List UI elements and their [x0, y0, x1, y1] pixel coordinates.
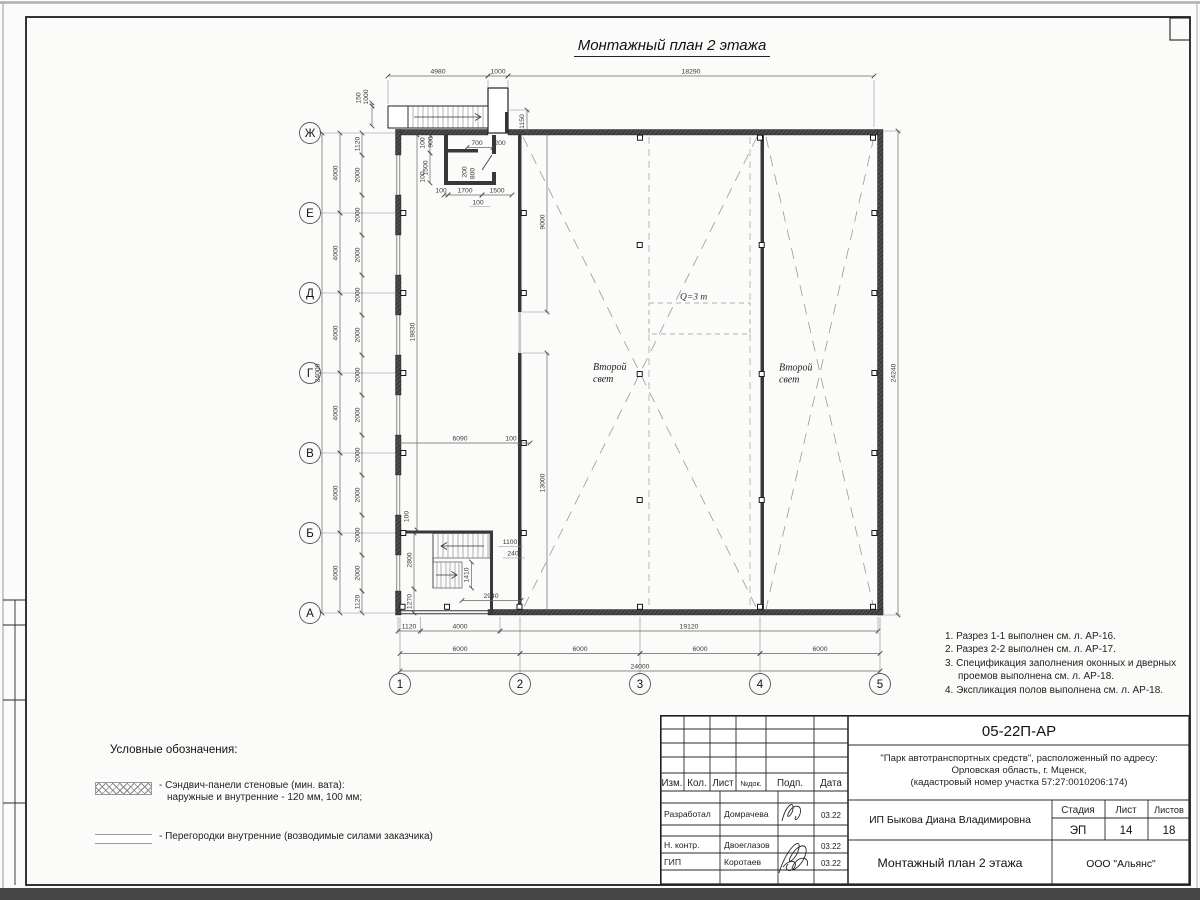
door-leaf	[482, 155, 492, 170]
dim-label: 6000	[692, 646, 707, 653]
dim-label: 2000	[355, 247, 362, 262]
dim-label: 200	[494, 140, 506, 147]
dim-right: 24240	[883, 131, 901, 615]
dim-label: 4980	[430, 69, 445, 76]
dim-chain-left-inner: 1120 2000 2000 2000 2000 2000 2000 2000 …	[355, 133, 363, 613]
axis-label: Б	[306, 528, 314, 540]
dim-label: 4000	[452, 624, 467, 631]
page-title: Монтажный план 2 этажа	[574, 37, 771, 57]
dim-label: 2000	[355, 327, 362, 342]
dim-shaft: 700 200 100 900 1500 100 200 800 100 170…	[420, 135, 513, 207]
dim-label: 1000	[490, 69, 505, 76]
role-name: Двоеглазов	[724, 840, 770, 850]
interior-walls	[401, 135, 764, 615]
legend-swatch-sandwich-panel	[95, 782, 152, 795]
dim-label: 200	[462, 166, 469, 178]
company-name: ООО "Альянс"	[1086, 859, 1156, 870]
dim-label: 2940	[483, 593, 498, 600]
stage-label: Стадия	[1061, 805, 1094, 816]
dim-label: 2000	[355, 487, 362, 502]
document-number: 05-22П-АР	[982, 723, 1056, 740]
corner-stamp-box	[1170, 18, 1190, 40]
legend-swatch-partition	[95, 834, 152, 844]
dim-label: 4000	[333, 485, 340, 500]
left-border-stamp-boxes	[3, 600, 26, 885]
legend-item-text: - Сэндвич-панели стеновые (мин. вата):	[159, 780, 362, 792]
dim-label: 6000	[572, 646, 587, 653]
dim-label: 2000	[355, 407, 362, 422]
dim-label: 1150	[519, 114, 526, 129]
note-item: 4. Экспликация полов выполнена см. л. АР…	[945, 684, 1193, 697]
stage-value: ЭП	[1070, 825, 1087, 837]
rev-col-podp: Подп.	[777, 778, 803, 789]
axis-label: Ж	[305, 128, 316, 140]
sheet-title: Монтажный план 2 этажа	[512, 37, 832, 57]
rev-col-data: Дата	[820, 778, 842, 789]
void-label: свет	[779, 375, 799, 386]
dim-label: 4000	[333, 165, 340, 180]
role-name: Коротаев	[724, 857, 762, 867]
legend-title: Условные обозначения:	[110, 744, 575, 756]
interior-stair	[433, 534, 490, 589]
rev-col-izm: Изм.	[662, 778, 683, 789]
door-opening	[518, 312, 521, 353]
axis-label: Г	[307, 368, 314, 380]
dim-label: 240	[507, 551, 519, 558]
void-label: Второй	[779, 363, 812, 374]
project-cadastre: (кадастровый номер участка 57:27:0010206…	[911, 777, 1128, 788]
scan-edge	[0, 888, 1200, 900]
dim-stair: 2800 1270 1100 240 1410 2940	[407, 533, 526, 613]
dim-label: 1120	[402, 624, 417, 631]
floor-plan: Ж Е Д Г В Б А 1 2 3 4 5 4980 1000 18290 …	[280, 60, 930, 700]
dim-label: 4000	[333, 405, 340, 420]
title-block: 05-22П-АР "Парк автотранспортных средств…	[660, 715, 1190, 885]
sheets-total: 18	[1163, 825, 1176, 837]
crane-capacity-label: Q=3 т	[680, 293, 707, 303]
dim-label: 6090	[452, 436, 467, 443]
axis-label: А	[306, 608, 314, 620]
legend-item-text: - Перегородки внутренние (возводимые сил…	[159, 831, 433, 843]
rev-col-list: Лист	[712, 778, 734, 789]
dim-label: 2000	[355, 527, 362, 542]
role-name: Домрачева	[724, 809, 769, 819]
axis-label: 5	[877, 679, 883, 691]
dim-label: 9000	[540, 214, 547, 229]
dim-label: 2000	[355, 207, 362, 222]
dim-label: 100	[505, 436, 517, 443]
dim-label: 1700	[457, 188, 472, 195]
sheet-label: Лист	[1115, 805, 1137, 816]
note-item: 2. Разрез 2-2 выполнен см. л. АР-17.	[945, 643, 1193, 656]
drawing-sheet: { "sheet": { "title": "Монтажный план 2 …	[0, 0, 1200, 900]
dim-label: 1270	[407, 594, 414, 609]
role-label: ГИП	[664, 857, 681, 867]
dim-label: 2000	[355, 167, 362, 182]
dim-label: 6000	[452, 646, 467, 653]
dim-label: 19830	[410, 322, 417, 341]
legend: Условные обозначения: - Сэндвич-панели с…	[95, 744, 575, 844]
dim-label: 24000	[315, 363, 322, 382]
dim-label: 1120	[355, 136, 362, 151]
crane-zone	[649, 303, 750, 334]
legend-item-text: наружные и внутренние - 120 мм, 100 мм;	[159, 792, 362, 804]
dim-label: 13000	[540, 473, 547, 492]
role-date: 03.22	[821, 811, 842, 820]
dim-label: 2800	[407, 552, 414, 567]
plan-labels: Второй свет Второй свет Q=3 т	[593, 293, 812, 386]
dim-label: 2000	[355, 367, 362, 382]
project-address: Орловская область, г. Мценск,	[951, 765, 1086, 776]
rev-col-kol: Кол.	[687, 778, 706, 789]
sheet-number: 14	[1120, 825, 1133, 837]
dim-label: 4000	[333, 325, 340, 340]
client-name: ИП Быкова Диана Владимировна	[869, 815, 1031, 826]
role-date: 03.22	[821, 859, 842, 868]
dim-label: 1120	[355, 594, 362, 609]
dim-label: 19120	[680, 624, 699, 631]
bottom-partition-wall	[396, 611, 489, 614]
axis-label: 1	[397, 679, 403, 691]
project-name: "Парк автотранспортных средств", располо…	[880, 753, 1157, 764]
axis-label: 3	[637, 679, 643, 691]
dim-label: 4000	[333, 565, 340, 580]
dim-label: 100	[404, 511, 411, 523]
role-label: Н. контр.	[664, 840, 699, 850]
dim-label: 1000	[363, 89, 370, 104]
dim-label: 100	[420, 137, 427, 149]
dim-label: 700	[471, 140, 483, 147]
dim-label: 2000	[355, 447, 362, 462]
axis-label: 4	[757, 679, 764, 691]
dim-label: 2000	[355, 287, 362, 302]
axis-label: Е	[306, 208, 314, 220]
dim-label: 1410	[464, 567, 471, 582]
dim-label: 24240	[891, 363, 898, 382]
role-label: Разработал	[664, 809, 711, 819]
void-label: Второй	[593, 362, 626, 373]
rev-col-ndok: №док.	[740, 779, 761, 788]
dim-label: 24000	[631, 664, 650, 671]
dim-label: 4000	[333, 245, 340, 260]
dim-label: 2000	[355, 565, 362, 580]
void-label: свет	[593, 374, 613, 385]
drawing-title: Монтажный план 2 этажа	[877, 856, 1022, 870]
dim-label: 100	[435, 188, 447, 195]
axis-label: В	[306, 448, 314, 460]
dim-label: 18290	[682, 69, 701, 76]
axis-grid: Ж Е Д Г В Б А 1 2 3 4 5	[300, 123, 891, 695]
dim-chain-bottom: 1120 4000 19120 6000 6000 6000 6000 2400…	[398, 617, 880, 671]
dim-label: 100	[420, 171, 427, 183]
dim-label: 900	[428, 136, 435, 148]
dim-label: 800	[470, 168, 477, 180]
role-date: 03.22	[821, 842, 842, 851]
axis-label: 2	[517, 679, 523, 691]
note-item: 3. Спецификация заполнения оконных и две…	[945, 657, 1193, 684]
dim-label: 1500	[489, 188, 504, 195]
dim-label: 1100	[503, 539, 518, 546]
dim-label: 6000	[812, 646, 827, 653]
note-item: 1. Разрез 1-1 выполнен см. л. АР-16.	[945, 630, 1193, 643]
notes-block: 1. Разрез 1-1 выполнен см. л. АР-16. 2. …	[945, 630, 1193, 697]
dim-label: 150	[356, 92, 363, 104]
crane-runway	[649, 137, 750, 609]
dim-label: 100	[472, 200, 484, 207]
axis-label: Д	[306, 288, 314, 300]
exterior-stair	[388, 88, 508, 133]
sheets-label: Листов	[1154, 805, 1184, 815]
